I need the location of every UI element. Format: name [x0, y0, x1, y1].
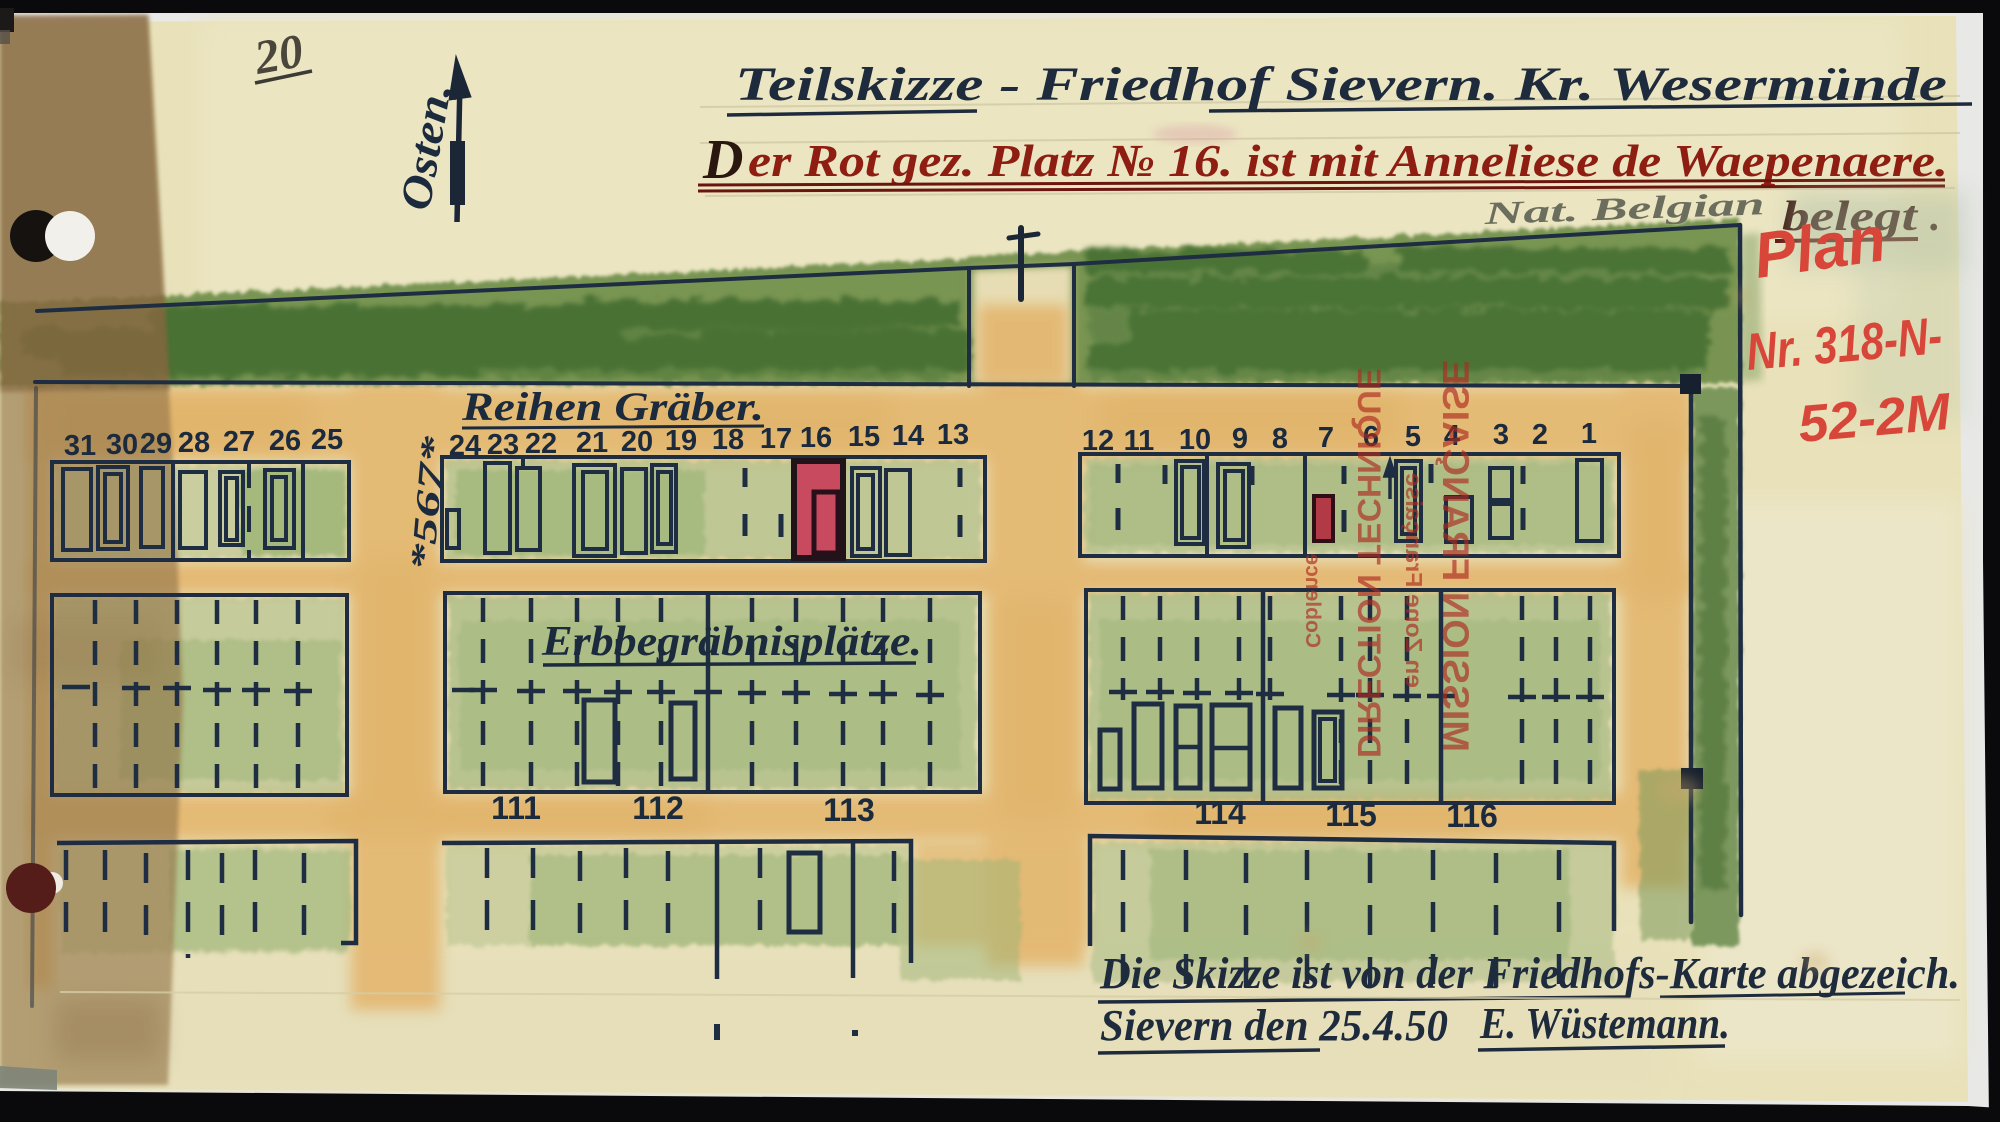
svg-text:27: 27 — [223, 426, 255, 458]
svg-text:5: 5 — [1405, 421, 1421, 453]
svg-text:8: 8 — [1272, 423, 1288, 455]
svg-text:22: 22 — [525, 428, 557, 460]
svg-text:Coblence: Coblence — [1301, 553, 1324, 648]
svg-text:9: 9 — [1232, 423, 1248, 455]
svg-text:DIRECTION TECHNIQUE: DIRECTION TECHNIQUE — [1351, 368, 1387, 758]
svg-text:24: 24 — [449, 430, 481, 462]
svg-text:10: 10 — [1179, 424, 1211, 456]
svg-text:112: 112 — [632, 790, 684, 826]
svg-text:113: 113 — [823, 792, 875, 828]
svg-text:21: 21 — [576, 427, 608, 459]
svg-text:20: 20 — [250, 24, 307, 85]
svg-text:12: 12 — [1082, 425, 1114, 457]
svg-text:30: 30 — [106, 429, 138, 461]
svg-text:116: 116 — [1446, 798, 1498, 834]
svg-text:E. Wüstemann.: E. Wüstemann. — [1479, 999, 1730, 1048]
svg-text:en Zone Française: en Zone Française — [1401, 473, 1427, 688]
svg-text:Teilskizze - Friedhof Sievern.: Teilskizze - Friedhof Sievern. Kr. Weser… — [735, 58, 1947, 111]
svg-text:2: 2 — [1532, 419, 1548, 451]
svg-text:13: 13 — [937, 419, 969, 451]
svg-text:14: 14 — [892, 420, 924, 452]
svg-text:23: 23 — [487, 429, 519, 461]
svg-text:20: 20 — [621, 426, 653, 458]
svg-text:111: 111 — [491, 790, 541, 826]
svg-text:115: 115 — [1325, 797, 1377, 833]
svg-text:25: 25 — [311, 424, 343, 456]
svg-text:MISSION FRANÇAISE: MISSION FRANÇAISE — [1435, 360, 1476, 752]
svg-text:28: 28 — [178, 427, 210, 459]
svg-text:Sievern den 25.4.50: Sievern den 25.4.50 — [1100, 1001, 1448, 1050]
svg-text:1: 1 — [1581, 418, 1597, 450]
svg-text:Die Skizze ist von der Friedho: Die Skizze ist von der Friedhofs-Karte a… — [1099, 949, 1960, 998]
svg-text:15: 15 — [848, 421, 880, 453]
svg-text:29: 29 — [140, 428, 172, 460]
svg-text:D: D — [702, 129, 743, 191]
svg-text:er Rot gez. Platz № 16. ist mi: er Rot gez. Platz № 16. ist mit Annelies… — [748, 135, 1948, 186]
svg-text:16: 16 — [800, 422, 832, 454]
svg-text:3: 3 — [1493, 419, 1509, 451]
svg-text:17: 17 — [760, 423, 792, 455]
svg-text:114: 114 — [1194, 795, 1246, 831]
svg-text:7: 7 — [1318, 422, 1334, 454]
svg-text:19: 19 — [665, 425, 697, 457]
svg-text:26: 26 — [269, 425, 301, 457]
svg-text:Erbbegräbnisplätze.: Erbbegräbnisplätze. — [541, 619, 922, 665]
svg-text:31: 31 — [64, 430, 96, 462]
svg-text:Reihen Gräber.: Reihen Gräber. — [461, 384, 764, 429]
svg-text:11: 11 — [1124, 425, 1155, 457]
